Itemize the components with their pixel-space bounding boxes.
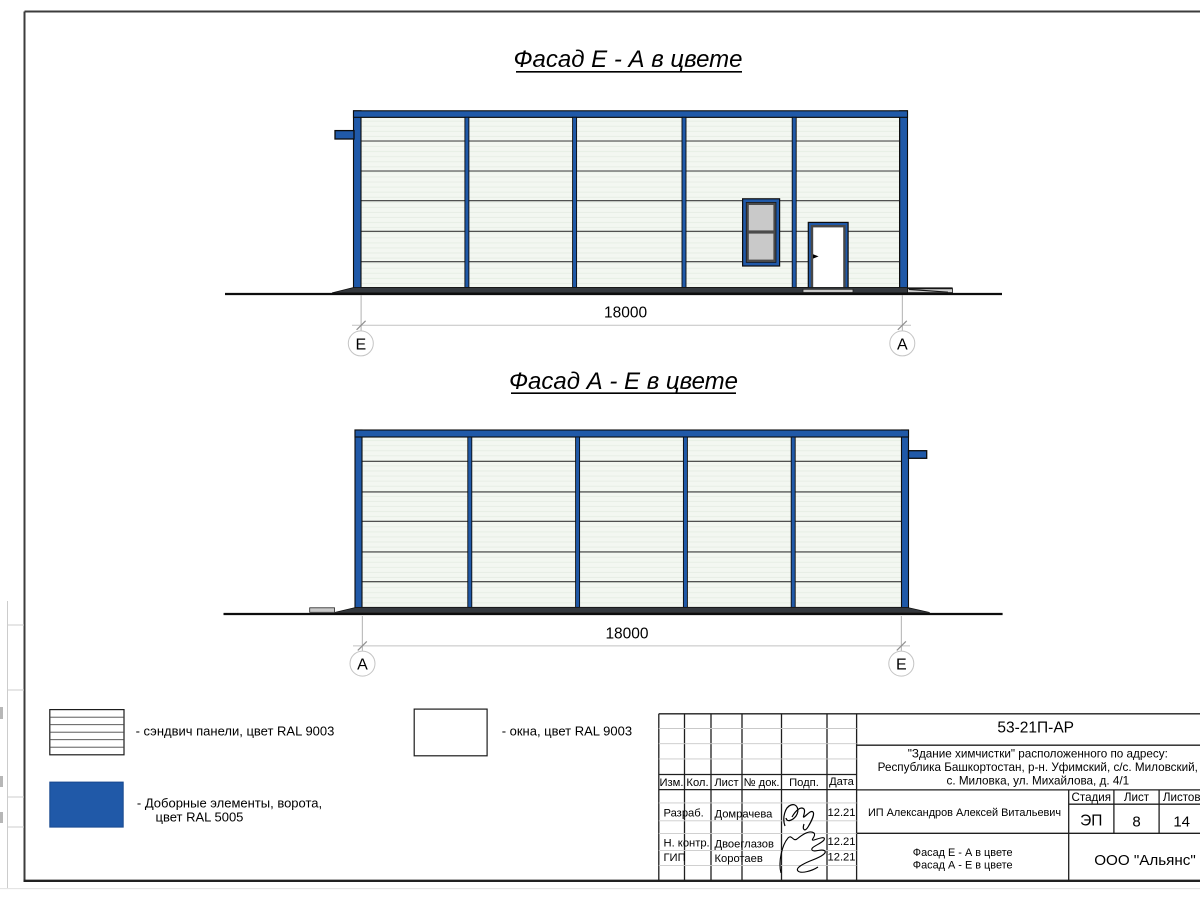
- svg-text:Е: Е: [355, 336, 366, 353]
- svg-text:с. Миловка, ул. Михайлова, д.: с. Миловка, ул. Михайлова, д. 4/1: [946, 774, 1129, 787]
- svg-text:ЭП: ЭП: [1080, 812, 1102, 829]
- svg-text:12.21: 12.21: [828, 807, 856, 819]
- svg-text:12.21: 12.21: [828, 852, 856, 864]
- svg-text:Подп.: Подп.: [789, 777, 819, 789]
- svg-text:12.21: 12.21: [828, 836, 856, 848]
- svg-text:Изм.: Изм.: [660, 777, 684, 789]
- svg-text:Лист: Лист: [1124, 791, 1150, 804]
- svg-text:ГИП: ГИП: [664, 852, 686, 864]
- svg-text:- Доборные элементы, ворота,: - Доборные элементы, ворота,: [137, 796, 322, 811]
- svg-text:18000: 18000: [605, 626, 648, 643]
- svg-text:Фасад А - Е в цвете: Фасад А - Е в цвете: [509, 368, 738, 395]
- svg-text:А: А: [357, 657, 368, 674]
- svg-text:Разраб.: Разраб.: [664, 808, 704, 820]
- svg-text:Фасад Е - А в цвете: Фасад Е - А в цвете: [513, 46, 742, 73]
- svg-text:14: 14: [1173, 814, 1190, 831]
- svg-text:18000: 18000: [604, 304, 647, 321]
- svg-text:- сэндвич панели, цвет RAL 900: - сэндвич панели, цвет RAL 9003: [136, 723, 335, 738]
- svg-text:Листов: Листов: [1163, 791, 1200, 804]
- svg-text:ООО "Альянс": ООО "Альянс": [1094, 852, 1196, 869]
- svg-text:№ док.: № док.: [744, 777, 780, 789]
- svg-text:Двоеглазов: Двоеглазов: [715, 839, 775, 851]
- svg-text:Кол.: Кол.: [686, 777, 708, 789]
- svg-text:Дата: Дата: [829, 776, 855, 788]
- svg-text:- окна, цвет RAL 9003: - окна, цвет RAL 9003: [502, 724, 632, 739]
- svg-text:Фасад А - Е в цвете: Фасад А - Е в цвете: [913, 860, 1013, 872]
- svg-text:Домрачева: Домрачева: [715, 809, 774, 821]
- svg-text:Е: Е: [896, 657, 907, 674]
- svg-text:А: А: [897, 336, 908, 353]
- svg-text:53-21П-АР: 53-21П-АР: [997, 720, 1074, 737]
- svg-text:Стадия: Стадия: [1072, 791, 1112, 804]
- svg-text:ИП Александров Алексей Виталье: ИП Александров Алексей Витальевич: [868, 807, 1061, 819]
- svg-text:цвет RAL 5005: цвет RAL 5005: [156, 810, 244, 825]
- svg-text:"Здание химчистки" расположенн: "Здание химчистки" расположенного по адр…: [908, 748, 1168, 761]
- svg-text:Лист: Лист: [714, 777, 738, 789]
- svg-text:Республика Башкортостан, р-н.: Республика Башкортостан, р-н. Уфимский, …: [878, 761, 1198, 774]
- svg-text:Н. контр.: Н. контр.: [664, 838, 710, 850]
- svg-text:Коротаев: Коротаев: [715, 853, 763, 865]
- svg-text:8: 8: [1132, 814, 1140, 831]
- svg-text:Фасад Е - А в цвете: Фасад Е - А в цвете: [913, 847, 1013, 859]
